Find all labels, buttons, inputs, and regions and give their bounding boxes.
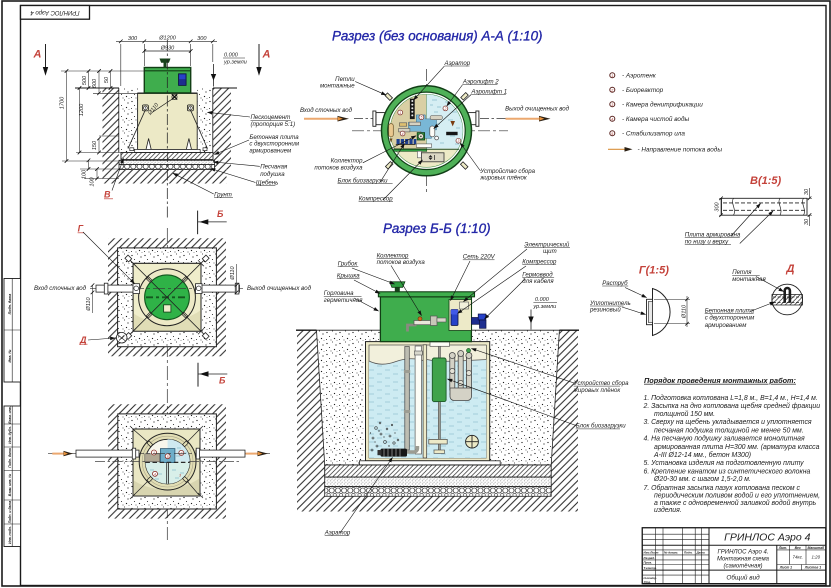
svg-text:5: 5 bbox=[167, 455, 169, 459]
svg-text:1200: 1200 bbox=[79, 103, 85, 116]
svg-text:74кг.: 74кг. bbox=[793, 555, 803, 560]
svg-text:Вес: Вес bbox=[795, 546, 801, 550]
svg-text:6. Крепление канатом из синтет: 6. Крепление канатом из синтетического в… bbox=[644, 469, 811, 476]
svg-text:- Камера чистой воды: - Камера чистой воды bbox=[622, 115, 690, 123]
svg-text:для кабеля: для кабеля bbox=[522, 278, 554, 285]
svg-text:- Камера денитрификации: - Камера денитрификации bbox=[622, 100, 703, 108]
svg-text:Ø110: Ø110 bbox=[230, 265, 236, 280]
svg-text:А: А bbox=[33, 49, 42, 61]
svg-text:герметичная: герметичная bbox=[324, 297, 364, 304]
svg-text:Порядок проведения монтажных р: Порядок проведения монтажных работ: bbox=[644, 376, 797, 385]
svg-text:4: 4 bbox=[402, 132, 404, 136]
svg-text:300: 300 bbox=[128, 36, 138, 42]
svg-text:Разраб.: Разраб. bbox=[644, 556, 656, 560]
svg-text:подушка: подушка bbox=[260, 171, 285, 178]
svg-text:Подп. дата: Подп. дата bbox=[8, 294, 12, 315]
svg-text:Г: Г bbox=[78, 224, 84, 234]
svg-text:Инв. подл.: Инв. подл. bbox=[8, 526, 12, 544]
svg-text:Подп. дата: Подп. дата bbox=[8, 448, 12, 468]
svg-text:а также с одновременной заливк: а также с одновременной заливкой водой в… bbox=[654, 499, 817, 507]
svg-text:- Стабилизатор ила: - Стабилизатор ила bbox=[622, 129, 685, 137]
svg-text:Т.контр.: Т.контр. bbox=[644, 566, 657, 570]
svg-text:№ докум.: № докум. bbox=[664, 551, 678, 555]
svg-text:(самотёчная): (самотёчная) bbox=[723, 564, 762, 570]
svg-text:- Биореактор: - Биореактор bbox=[622, 87, 664, 94]
svg-text:толщиной 150 мм.: толщиной 150 мм. bbox=[654, 410, 715, 418]
svg-text:Вход сточных вод: Вход сточных вод bbox=[300, 107, 353, 114]
svg-text:0.000: 0.000 bbox=[224, 53, 239, 59]
svg-text:2: 2 bbox=[443, 107, 446, 111]
svg-text:50: 50 bbox=[104, 76, 110, 83]
svg-text:Листов 1: Листов 1 bbox=[804, 566, 821, 570]
svg-text:ГРИНЛОС Аэро 4.: ГРИНЛОС Аэро 4. bbox=[718, 550, 769, 556]
svg-text:1. Подготовка котлована L=1,8: 1. Подготовка котлована L=1,8 м., В=1,4 … bbox=[644, 394, 818, 402]
svg-text:600: 600 bbox=[92, 78, 98, 88]
svg-text:3: 3 bbox=[457, 139, 459, 143]
svg-text:ур.земли: ур.земли bbox=[223, 60, 247, 66]
svg-text:А-III Ø12-14 мм., бетон М300): А-III Ø12-14 мм., бетон М300) bbox=[653, 451, 751, 459]
svg-text:периодическим поливом водой и: периодическим поливом водой и его уплотн… bbox=[654, 491, 820, 499]
svg-text:Ø930: Ø930 bbox=[160, 46, 175, 52]
svg-text:Ø110: Ø110 bbox=[86, 296, 92, 311]
svg-text:Дата: Дата bbox=[696, 551, 706, 555]
svg-text:Разрез Б-Б (1:10): Разрез Б-Б (1:10) bbox=[383, 221, 491, 236]
svg-text:Ø110: Ø110 bbox=[682, 304, 688, 319]
svg-text:1700: 1700 bbox=[60, 96, 66, 109]
svg-text:Разрез (без основания) А-А (1:: Разрез (без основания) А-А (1:10) bbox=[332, 29, 543, 44]
svg-text:Взам. инв. №: Взам. инв. № bbox=[8, 474, 12, 497]
svg-text:ур.земли: ур.земли bbox=[532, 304, 556, 310]
svg-text:1: 1 bbox=[611, 74, 613, 78]
svg-text:Ø20-30 мм. с шагом 1,5-2,0 м.: Ø20-30 мм. с шагом 1,5-2,0 м. bbox=[653, 476, 751, 483]
svg-text:4. На песчаную подушку заливае: 4. На песчаную подушку заливается моноли… bbox=[644, 435, 805, 443]
svg-text:Инв. №: Инв. № bbox=[8, 349, 12, 362]
svg-text:Подп.: Подп. bbox=[684, 551, 693, 555]
svg-text:песчаная подушка толщиной не м: песчаная подушка толщиной не менее 50 мм… bbox=[654, 426, 804, 434]
svg-text:Инв. дубл.: Инв. дубл. bbox=[8, 426, 12, 444]
svg-text:150: 150 bbox=[92, 140, 98, 150]
svg-text:Выход очищенных вод: Выход очищенных вод bbox=[247, 285, 312, 292]
svg-text:Изм.Лист: Изм.Лист bbox=[644, 551, 659, 555]
svg-text:Лит.: Лит. bbox=[778, 546, 787, 550]
svg-text:Г(1:5): Г(1:5) bbox=[639, 264, 669, 276]
svg-text:Подп. и дата: Подп. и дата bbox=[8, 501, 12, 524]
svg-text:с двухсторонним: с двухсторонним bbox=[705, 315, 755, 322]
svg-text:ГРИНЛОС Аэро 4: ГРИНЛОС Аэро 4 bbox=[724, 532, 810, 544]
svg-text:монтажные: монтажные bbox=[320, 83, 355, 90]
svg-text:- Аэротенк: - Аэротенк bbox=[622, 72, 657, 79]
svg-text:щит: щит bbox=[543, 248, 557, 255]
svg-text:Монтажная схема: Монтажная схема bbox=[717, 557, 770, 563]
svg-text:5: 5 bbox=[420, 116, 422, 120]
svg-text:армированием: армированием bbox=[249, 147, 292, 154]
svg-text:1: 1 bbox=[153, 451, 155, 455]
svg-text:Масштаб: Масштаб bbox=[807, 546, 825, 550]
svg-text:1:20: 1:20 bbox=[812, 555, 821, 560]
svg-text:1: 1 bbox=[399, 111, 401, 115]
svg-text:300: 300 bbox=[715, 201, 721, 211]
svg-text:Вход сточных вод: Вход сточных вод bbox=[34, 285, 87, 292]
svg-text:3. Сверху на щебень укладывает: 3. Сверху на щебень укладывается и уплот… bbox=[644, 418, 812, 426]
svg-text:500: 500 bbox=[82, 75, 88, 85]
svg-text:А: А bbox=[262, 49, 271, 61]
svg-text:7. Обратная засыпка пазух котл: 7. Обратная засыпка пазух котлована песк… bbox=[644, 484, 801, 492]
svg-text:В(1:5): В(1:5) bbox=[750, 175, 782, 187]
svg-text:Общий вид: Общий вид bbox=[726, 574, 760, 582]
svg-text:Д: Д bbox=[786, 263, 795, 275]
svg-text:армированная плита Н=300 мм. (: армированная плита Н=300 мм. (арматура к… bbox=[654, 444, 820, 451]
svg-text:4: 4 bbox=[611, 117, 613, 121]
svg-text:жировых плёнок: жировых плёнок bbox=[573, 387, 622, 394]
svg-text:2: 2 bbox=[610, 88, 613, 92]
svg-text:5: 5 bbox=[611, 132, 613, 136]
svg-text:Пров.: Пров. bbox=[644, 561, 653, 565]
svg-text:резиновый: резиновый bbox=[589, 307, 621, 314]
svg-text:Взам. инв.: Взам. инв. bbox=[8, 406, 12, 424]
svg-text:В: В bbox=[104, 189, 111, 199]
svg-text:- Направление потока воды: - Направление потока воды bbox=[638, 145, 723, 153]
svg-text:2. Засыпка на дно котлована ще: 2. Засыпка на дно котлована щебня средне… bbox=[643, 402, 821, 410]
svg-text:потоков воздуха: потоков воздуха bbox=[314, 164, 363, 171]
svg-text:4: 4 bbox=[154, 472, 156, 476]
svg-text:30: 30 bbox=[804, 188, 810, 195]
svg-text:100: 100 bbox=[82, 169, 88, 179]
svg-text:Утв.: Утв. bbox=[644, 580, 652, 584]
svg-text:3: 3 bbox=[611, 103, 613, 107]
svg-text:Б: Б bbox=[219, 375, 226, 385]
svg-text:армированием: армированием bbox=[705, 322, 748, 329]
svg-text:жировых плёнок: жировых плёнок bbox=[479, 175, 528, 182]
svg-text:100: 100 bbox=[90, 176, 96, 186]
svg-text:ГРИНЛОС Аэро 4: ГРИНЛОС Аэро 4 bbox=[30, 9, 80, 15]
svg-text:30: 30 bbox=[804, 218, 810, 225]
svg-text:5. Установка изделия на подгот: 5. Установка изделия на подготовленную п… bbox=[644, 459, 805, 467]
svg-text:Песчаная: Песчаная bbox=[260, 163, 288, 170]
svg-text:изделия.: изделия. bbox=[654, 506, 682, 514]
svg-text:потоков воздуха: потоков воздуха bbox=[377, 259, 426, 266]
svg-text:Б: Б bbox=[217, 209, 224, 219]
svg-text:Выход очищенных вод: Выход очищенных вод bbox=[505, 105, 570, 112]
svg-text:300: 300 bbox=[197, 36, 207, 42]
svg-text:Д: Д bbox=[79, 335, 87, 345]
svg-text:Лист 1: Лист 1 bbox=[779, 566, 792, 570]
svg-text:Ø1200: Ø1200 bbox=[158, 36, 176, 42]
svg-text:(пропорция 5:1): (пропорция 5:1) bbox=[251, 121, 296, 128]
